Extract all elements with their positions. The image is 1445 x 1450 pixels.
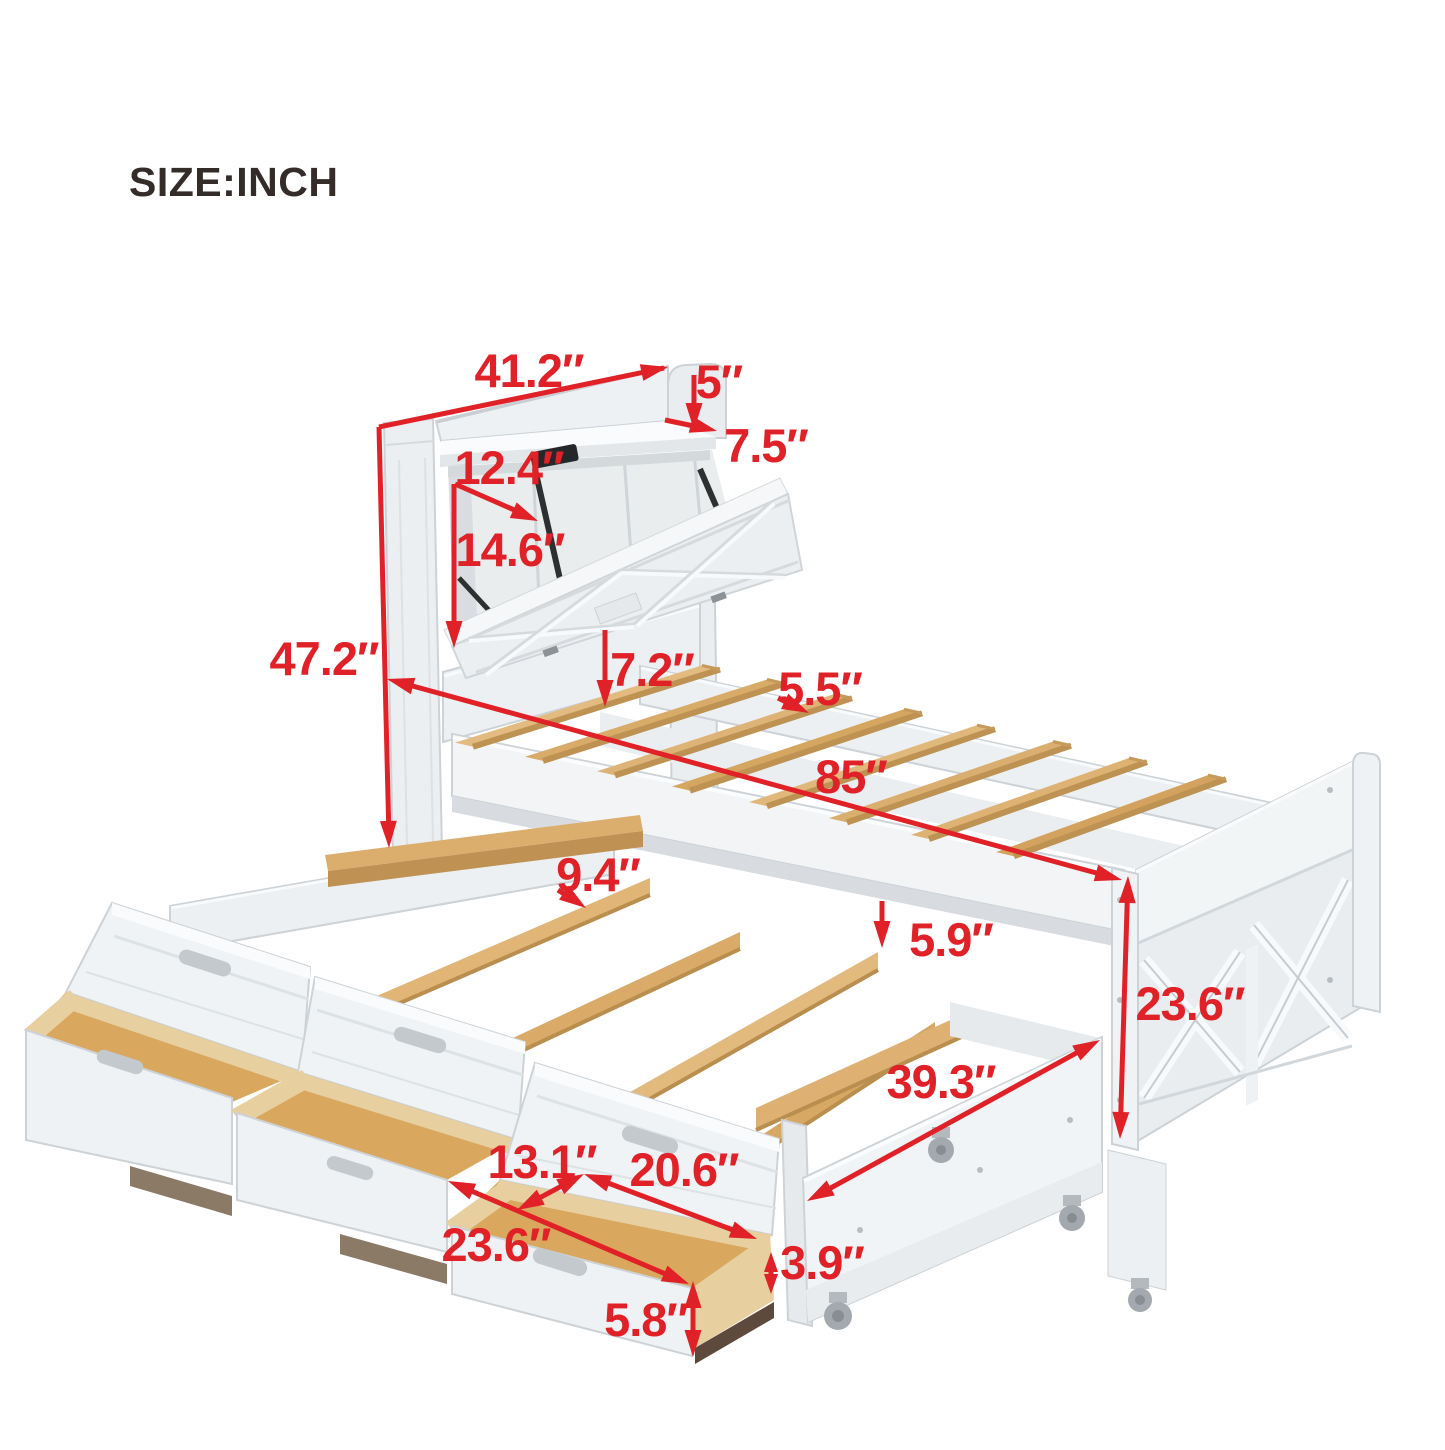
svg-text:47.2″: 47.2″ (270, 632, 379, 685)
svg-text:20.6″: 20.6″ (630, 1143, 739, 1196)
svg-text:39.3″: 39.3″ (887, 1055, 996, 1108)
svg-text:9.4″: 9.4″ (556, 848, 640, 901)
svg-text:41.2″: 41.2″ (475, 344, 584, 397)
svg-text:SIZE:INCH: SIZE:INCH (129, 159, 339, 205)
svg-text:7.2″: 7.2″ (610, 643, 694, 696)
svg-text:85″: 85″ (815, 750, 887, 803)
svg-text:13.1″: 13.1″ (488, 1135, 597, 1188)
svg-text:5.8″: 5.8″ (604, 1293, 688, 1346)
svg-text:5.9″: 5.9″ (909, 913, 993, 966)
svg-text:23.6″: 23.6″ (442, 1218, 551, 1271)
svg-text:7.5″: 7.5″ (724, 419, 808, 472)
svg-text:12.4″: 12.4″ (455, 441, 564, 494)
svg-text:14.6″: 14.6″ (456, 523, 565, 576)
svg-text:5″: 5″ (696, 355, 743, 408)
svg-text:3.9″: 3.9″ (780, 1236, 864, 1289)
svg-text:23.6″: 23.6″ (1136, 977, 1245, 1030)
svg-text:5.5″: 5.5″ (778, 662, 862, 715)
